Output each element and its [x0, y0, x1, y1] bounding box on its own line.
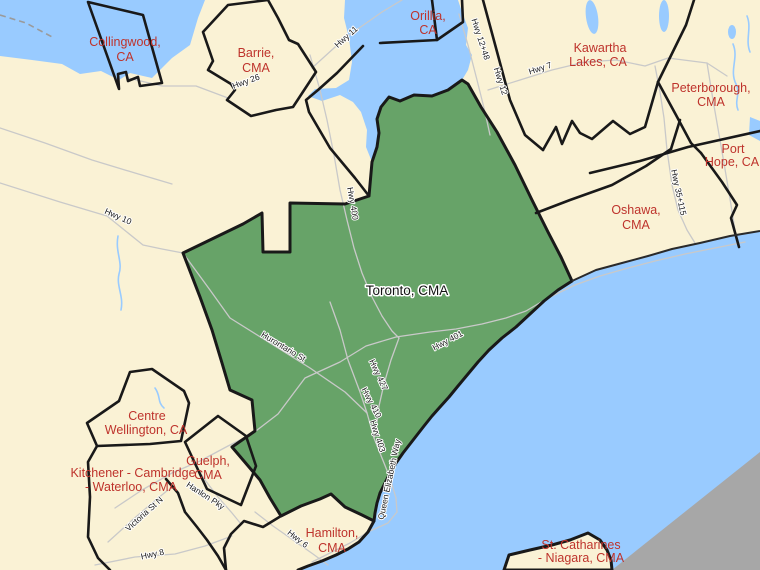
region-label-st-catharines-niagara: St. Catharines	[541, 538, 620, 552]
region-label-hamilton: Hamilton,	[306, 526, 359, 540]
region-label-oshawa: CMA	[622, 218, 650, 232]
map-canvas: Hwy 11 Hwy 26 Hwy 12+48 Hwy 12 Hwy 7 Hwy…	[0, 0, 760, 570]
region-label-port-hope: Hope, CA	[705, 155, 760, 169]
region-label-peterborough: CMA	[697, 95, 725, 109]
region-label-barrie: CMA	[242, 61, 270, 75]
region-label-kitchener-cambridge-waterloo: - Waterloo, CMA	[85, 480, 178, 494]
region-label-oshawa: Oshawa,	[611, 203, 660, 217]
region-label-hamilton: CMA	[318, 541, 346, 555]
region-label-centre-wellington: Centre	[128, 409, 166, 423]
region-label-st-catharines-niagara: - Niagara, CMA	[538, 551, 625, 565]
region-label-toronto-cma: Toronto, CMA	[366, 283, 449, 298]
region-label-barrie: Barrie,	[238, 46, 275, 60]
region-label-peterborough: Peterborough,	[671, 81, 750, 95]
small-lake	[728, 25, 736, 39]
region-label-kitchener-cambridge-waterloo: Kitchener - Cambridge	[70, 466, 195, 480]
region-label-kawartha-lakes: Kawartha	[574, 41, 627, 55]
region-label-collingwood: Collingwood,	[89, 35, 161, 49]
region-label-port-hope: Port	[722, 142, 745, 156]
region-label-kawartha-lakes: Lakes, CA	[569, 55, 627, 69]
small-lake	[659, 0, 669, 32]
census-map: Hwy 11 Hwy 26 Hwy 12+48 Hwy 12 Hwy 7 Hwy…	[0, 0, 760, 570]
region-label-orillia: Orillia,	[410, 9, 445, 23]
region-label-orillia: CA	[419, 23, 437, 37]
region-label-guelph: CMA	[194, 468, 222, 482]
region-label-collingwood: CA	[116, 50, 134, 64]
region-label-centre-wellington: Wellington, CA	[105, 423, 188, 437]
